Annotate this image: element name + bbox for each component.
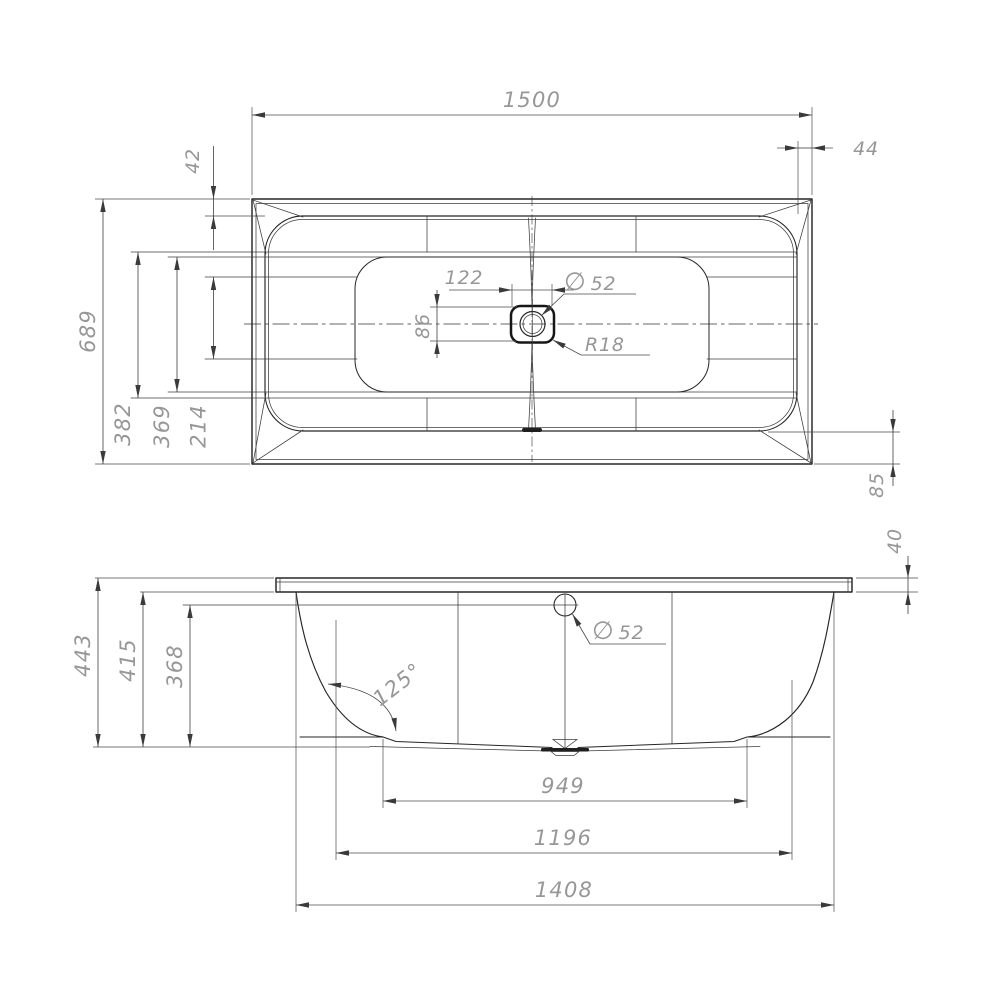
side-view-dimensions: 443 415 368 40 125° (71, 528, 918, 912)
dim-label-1408: 1408 (535, 878, 593, 902)
dim-wall-angle: 125° (328, 658, 427, 731)
dim-overall-length: 1500 (252, 88, 812, 115)
dim-label-214: 214 (187, 404, 211, 448)
dim-drain-offset-x: 122 (445, 267, 574, 290)
top-view: 1500 44 42 689 382 (76, 88, 900, 498)
extension-lines-side-view (93, 578, 918, 912)
dim-overall-height: 443 (71, 578, 98, 747)
rim-flange (276, 578, 852, 592)
dim-label-949: 949 (541, 774, 585, 798)
rim-inner-edge-offset (269, 220, 794, 428)
dim-basin-width-inner: 214 (187, 277, 214, 448)
dim-basin-width-outer: 382 (111, 252, 138, 446)
dim-overflow-diameter: ∅52 (573, 614, 667, 645)
rim-flange-detail (276, 578, 852, 592)
extension-lines-top-view (95, 107, 900, 464)
dim-label-85: 85 (866, 472, 888, 498)
dim-label-42: 42 (182, 148, 204, 174)
dim-drain-diameter: ∅52 (542, 267, 637, 316)
dim-rim-right: 44 (777, 138, 879, 160)
dim-top-length: 1408 (296, 878, 834, 905)
dim-inner-height: 415 (116, 592, 143, 747)
dim-mid-length: 1196 (336, 826, 792, 853)
dim-rim-bottom: 85 (866, 410, 893, 498)
side-view-geometry (183, 578, 852, 756)
dim-label-689: 689 (76, 309, 100, 353)
bathtub-technical-drawing: 1500 44 42 689 382 (0, 0, 1000, 1000)
dim-label-R18: R18 (585, 334, 625, 356)
top-view-geometry (131, 196, 818, 464)
dim-label-125deg: 125° (368, 658, 426, 711)
drain-fitting-bar (541, 748, 589, 752)
right-wall (748, 592, 834, 737)
dim-drain-offset-y: 86 (412, 290, 437, 358)
dim-label-443: 443 (71, 633, 95, 677)
dim-label-86: 86 (412, 313, 434, 339)
dim-label-1500: 1500 (503, 88, 561, 112)
dim-basin-width-mid: 369 (150, 257, 177, 448)
dim-label-44: 44 (853, 138, 879, 160)
dim-overflow-height: 368 (163, 605, 190, 747)
dim-label-overflow-diameter: ∅52 (592, 616, 644, 645)
dim-rim-top: 42 (182, 146, 214, 250)
dim-label-40: 40 (884, 528, 906, 554)
dim-label-382: 382 (111, 402, 135, 446)
overflow-mark (522, 428, 542, 432)
wall-facet-verticals (427, 216, 636, 431)
dim-rim-thickness: 40 (884, 528, 908, 614)
top-view-dimensions: 1500 44 42 689 382 (76, 88, 900, 498)
dim-label-drain-diameter: ∅52 (564, 267, 616, 296)
technical-drawing-page: 1500 44 42 689 382 (0, 0, 1000, 1000)
dim-drain-radius: R18 (553, 334, 650, 356)
dim-label-1196: 1196 (534, 826, 592, 850)
left-wall (296, 592, 383, 737)
side-view: 443 415 368 40 125° (71, 528, 918, 912)
dim-overall-width: 689 (76, 199, 103, 464)
dim-label-122: 122 (445, 267, 484, 289)
dim-bottom-length: 949 (383, 774, 747, 801)
rim-inner-edge (265, 216, 797, 431)
drain-fitting-trapezoid (551, 752, 579, 756)
dim-label-368: 368 (163, 644, 187, 688)
dim-label-369: 369 (150, 404, 174, 448)
dim-label-415: 415 (116, 638, 140, 682)
